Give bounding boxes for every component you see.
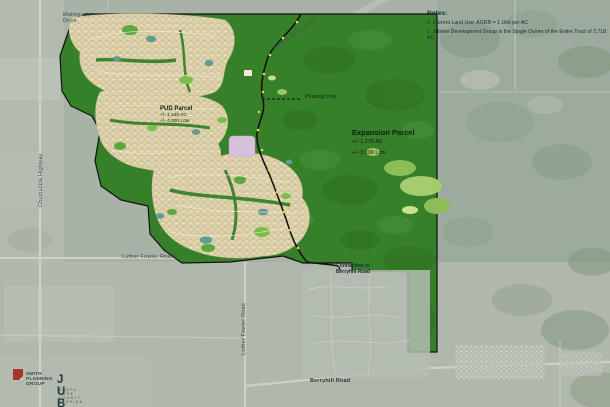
notes-title: Notes: xyxy=(427,10,607,18)
pud-parcel-label: PUD Parcel +/- 1,440 AC +/- 4,000 Lots xyxy=(160,106,192,124)
road-label-luther-fowler-road-south: Luther Fowler Road xyxy=(241,303,247,355)
pud-parcel-lots: +/- 4,000 Lots xyxy=(160,119,192,124)
smith-planning-group-logo-icon xyxy=(13,369,23,380)
note-item: 2. Jubilee Development Group is the Sing… xyxy=(427,29,607,41)
road-label-mahogany-drive: Mahogany Drive xyxy=(63,12,99,25)
amenity-site xyxy=(244,70,252,76)
road-label-luther-fowler-road-west: Luther Fowler Road xyxy=(122,254,174,260)
pink-parcel xyxy=(229,136,255,157)
road-label-chumuckla-highway: Chumuckla Highway xyxy=(38,153,44,207)
smith-planning-group-wordmark: SMITH PLANNING GROUP xyxy=(26,373,53,388)
note-item: 1. Current Land Use: AGRR = 1 Unit per A… xyxy=(427,20,607,26)
road-label-berryhill-road: Berryhill Road xyxy=(310,378,350,384)
expansion-parcel-lots: +/- 3,000 Lots xyxy=(352,150,415,156)
project-subtitle: SANTA ROSA COUNTY, FLORIDA xyxy=(59,388,83,404)
jubilee-master-plan-map: Mahogany Drive Willard Norris Road Chumu… xyxy=(0,0,610,407)
pud-parcel-name: PUD Parcel xyxy=(160,106,192,112)
map-graphic xyxy=(0,0,610,407)
phasing-line-label: Phasing Line xyxy=(305,95,336,101)
pud-parcel-acres: +/- 1,440 AC xyxy=(160,113,192,118)
expansion-parcel-label: Expansion Parcel +/- 1,278 AC +/- 3,000 … xyxy=(352,128,415,156)
notes-block: Notes: 1. Current Land Use: AGRR = 1 Uni… xyxy=(427,10,607,45)
connection-label-line2: Berryhill Road xyxy=(328,269,378,275)
expansion-parcel-name: Expansion Parcel xyxy=(352,128,415,137)
connection-to-berryhill-label: Connection to Berryhill Road xyxy=(328,263,378,276)
spg-line3: GROUP xyxy=(26,383,53,388)
expansion-parcel-acres: +/- 1,278 AC xyxy=(352,139,415,145)
